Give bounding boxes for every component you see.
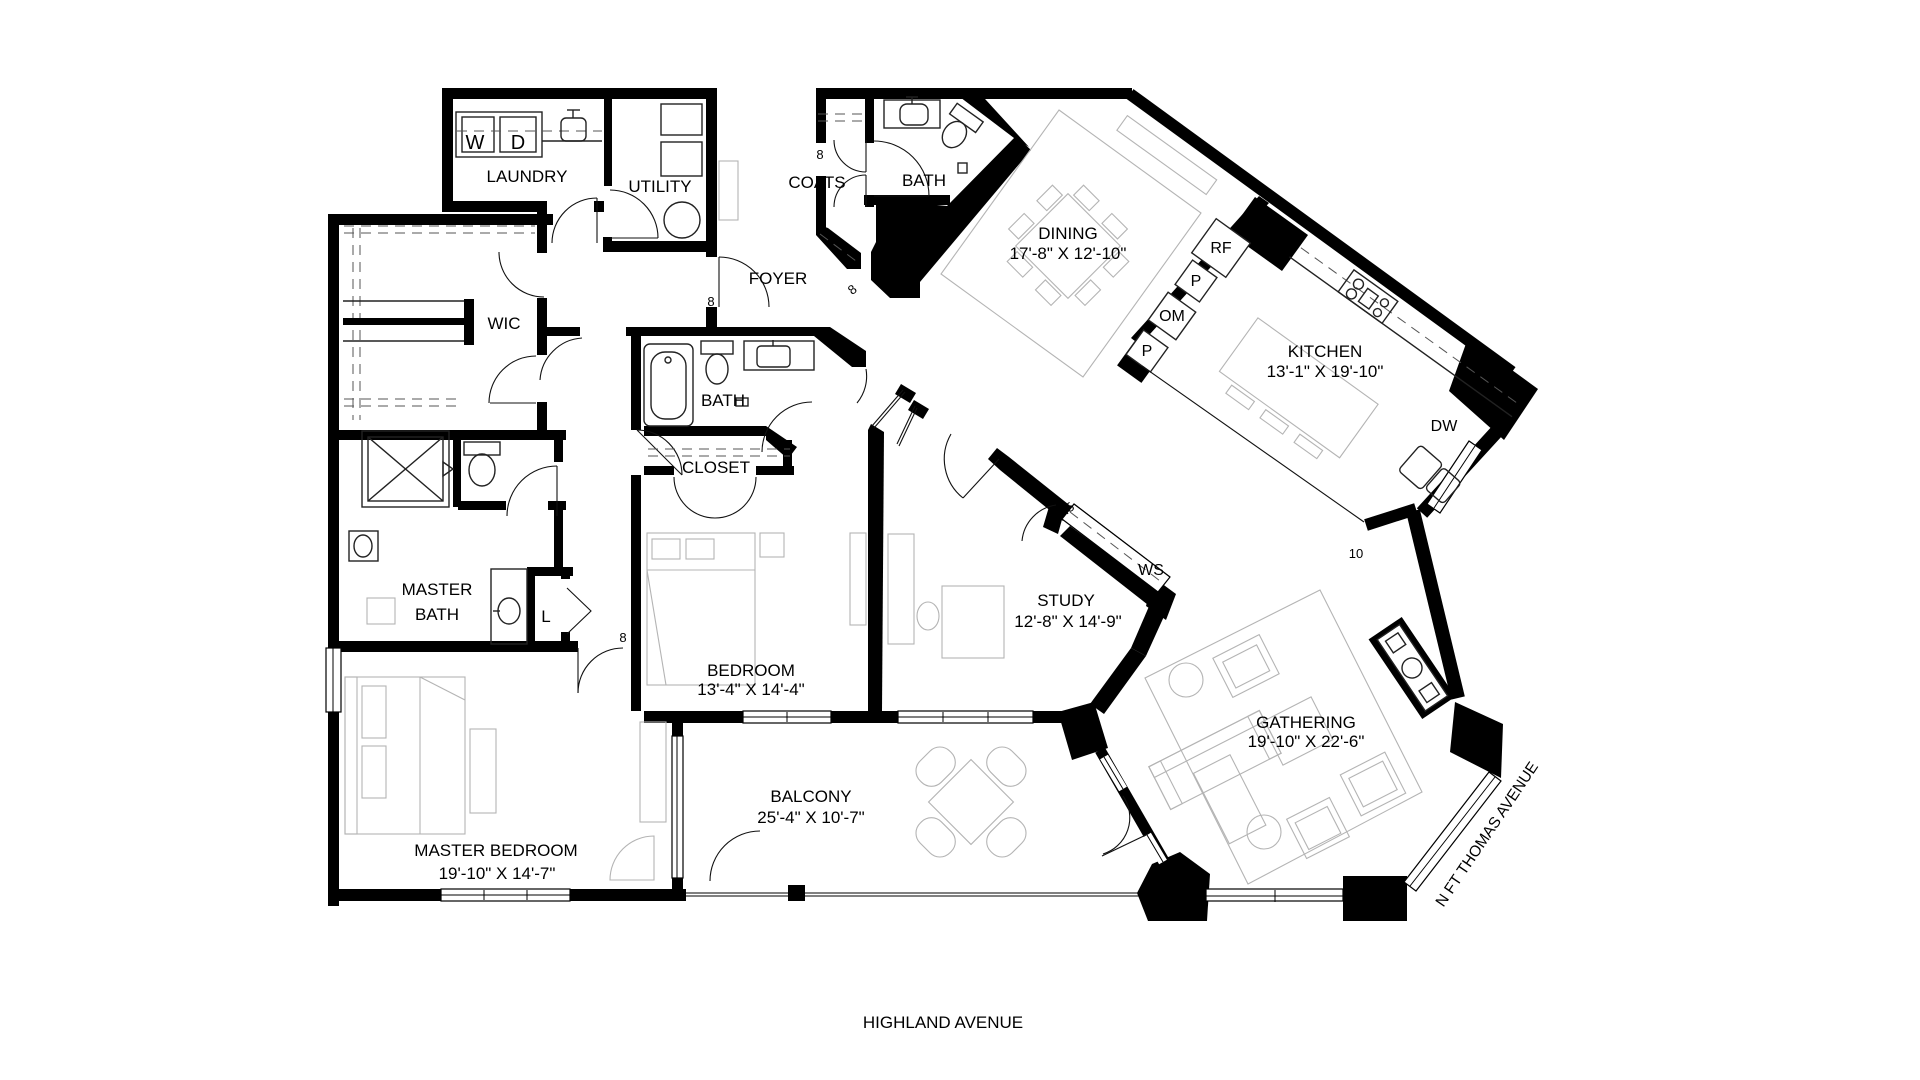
svg-text:P: P — [1142, 343, 1153, 360]
svg-text:8: 8 — [816, 147, 823, 162]
svg-text:8: 8 — [619, 630, 626, 645]
svg-text:13'-1" X 19'-10": 13'-1" X 19'-10" — [1267, 362, 1384, 381]
svg-text:BALCONY: BALCONY — [770, 787, 851, 806]
svg-text:UTILITY: UTILITY — [628, 177, 691, 196]
svg-text:25'-4" X 10'-7": 25'-4" X 10'-7" — [757, 808, 864, 827]
svg-text:DW: DW — [1431, 418, 1459, 435]
svg-text:KITCHEN: KITCHEN — [1288, 342, 1363, 361]
svg-text:WS: WS — [1138, 562, 1164, 579]
svg-text:LAUNDRY: LAUNDRY — [487, 167, 568, 186]
svg-text:DINING: DINING — [1038, 224, 1098, 243]
svg-text:MASTER BEDROOM: MASTER BEDROOM — [414, 841, 577, 860]
svg-text:10: 10 — [1349, 546, 1363, 561]
svg-text:17'-8" X 12'-10": 17'-8" X 12'-10" — [1010, 244, 1127, 263]
svg-text:W: W — [466, 132, 485, 154]
svg-text:STUDY: STUDY — [1037, 591, 1095, 610]
svg-text:OM: OM — [1159, 308, 1185, 325]
svg-text:13'-4" X 14'-4": 13'-4" X 14'-4" — [697, 680, 804, 699]
svg-text:RF: RF — [1210, 240, 1232, 257]
svg-text:COATS: COATS — [788, 173, 845, 192]
svg-text:L: L — [541, 607, 550, 626]
svg-text:BATH: BATH — [902, 171, 946, 190]
svg-text:8: 8 — [707, 294, 714, 309]
svg-text:HIGHLAND AVENUE: HIGHLAND AVENUE — [863, 1013, 1023, 1032]
svg-text:BATH: BATH — [701, 391, 745, 410]
svg-text:BEDROOM: BEDROOM — [707, 661, 795, 680]
svg-text:P: P — [1191, 273, 1202, 290]
svg-text:19'-10" X 22'-6": 19'-10" X 22'-6" — [1248, 732, 1365, 751]
svg-text:MASTER: MASTER — [402, 580, 473, 599]
svg-text:19'-10" X 14'-7": 19'-10" X 14'-7" — [439, 864, 556, 883]
svg-text:GATHERING: GATHERING — [1256, 713, 1356, 732]
svg-text:BATH: BATH — [415, 605, 459, 624]
svg-text:FOYER: FOYER — [749, 269, 808, 288]
svg-text:D: D — [511, 132, 525, 154]
svg-text:CLOSET: CLOSET — [682, 458, 750, 477]
svg-text:12'-8" X 14'-9": 12'-8" X 14'-9" — [1014, 612, 1121, 631]
svg-text:WIC: WIC — [487, 314, 520, 333]
